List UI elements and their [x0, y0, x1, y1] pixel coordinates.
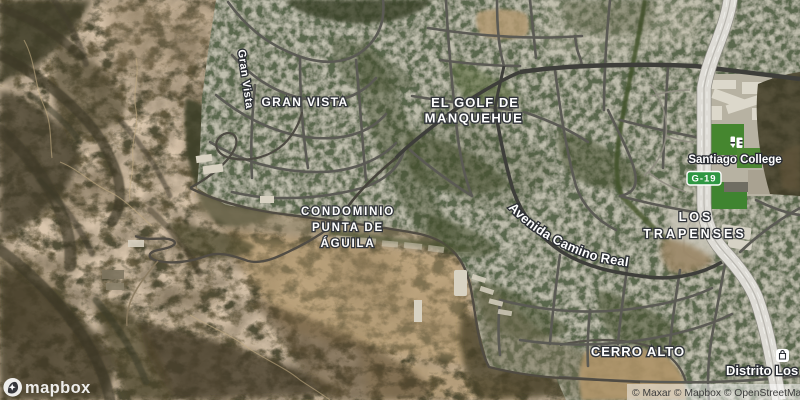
svg-text:G-19: G-19	[691, 174, 716, 185]
svg-text:mapbox: mapbox	[25, 379, 91, 397]
svg-text:© Maxar © Mapbox © OpenStreetM: © Maxar © Mapbox © OpenStreetMap	[632, 388, 800, 399]
svg-text:GRAN VISTA: GRAN VISTA	[261, 95, 348, 109]
svg-text:CONDOMINIO: CONDOMINIO	[301, 206, 395, 218]
svg-text:MANQUEHUE: MANQUEHUE	[425, 111, 524, 126]
svg-text:Santiago College: Santiago College	[688, 154, 781, 166]
svg-text:PUNTA DE: PUNTA DE	[312, 222, 384, 234]
svg-text:LOS: LOS	[679, 210, 714, 224]
svg-text:ÁGUILA: ÁGUILA	[321, 237, 376, 250]
svg-text:CERRO ALTO: CERRO ALTO	[591, 344, 685, 359]
svg-text:Distrito Los Tra: Distrito Los Tra	[726, 363, 800, 378]
svg-text:TRAPENSES: TRAPENSES	[643, 227, 746, 241]
svg-text:EL GOLF DE: EL GOLF DE	[431, 95, 519, 110]
